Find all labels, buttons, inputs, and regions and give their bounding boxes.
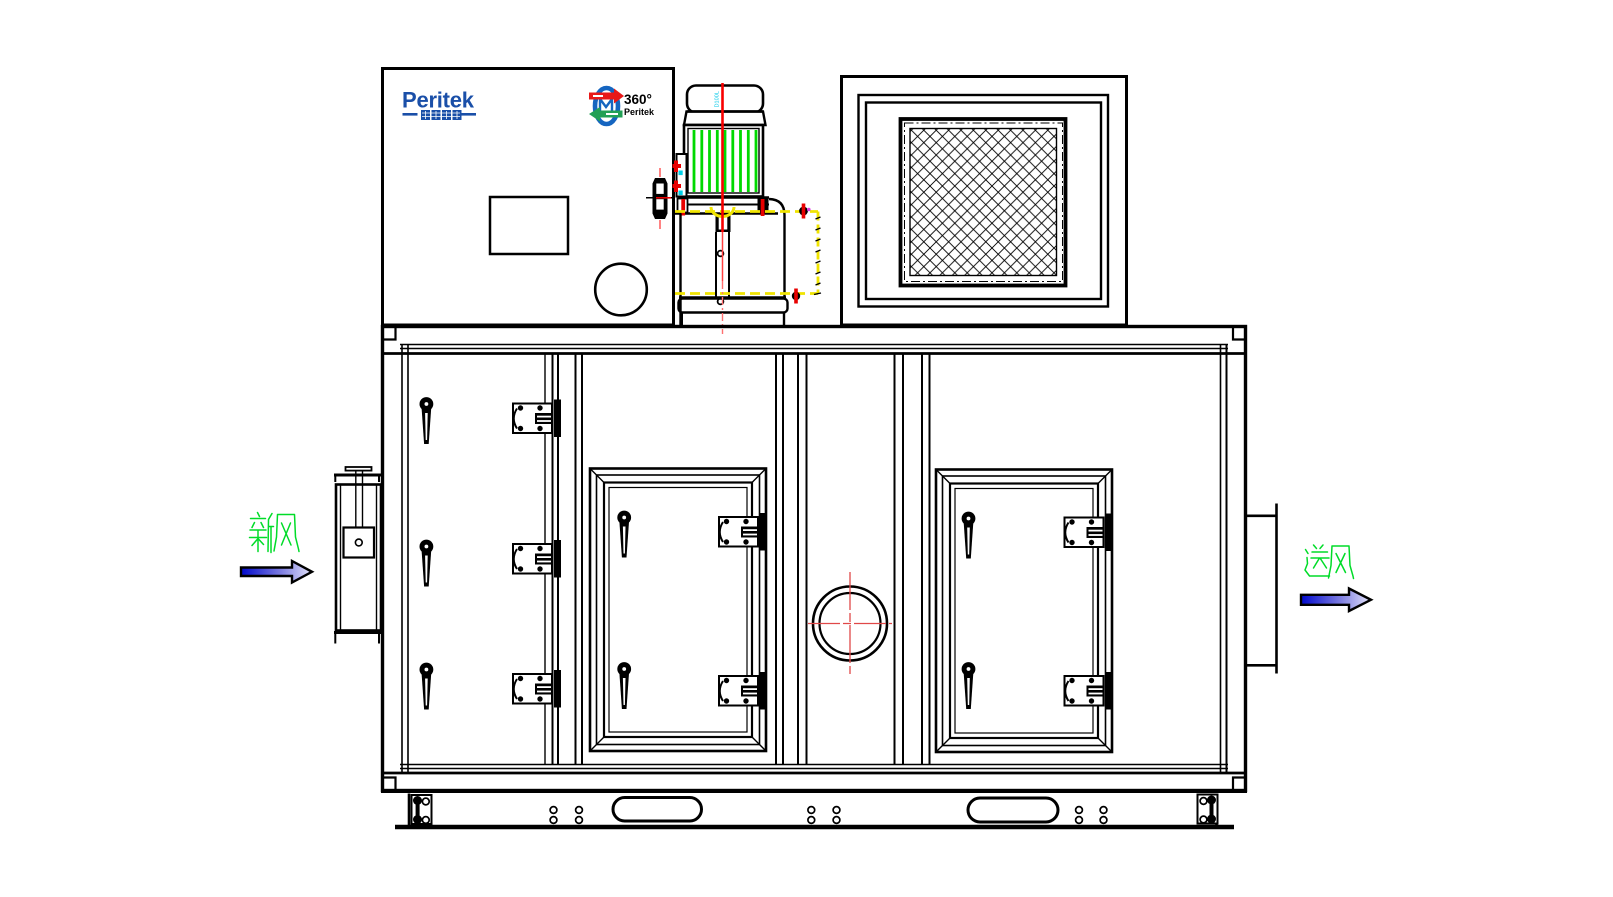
svg-text:Peritek: Peritek <box>624 107 655 117</box>
svg-text:360°: 360° <box>624 92 652 107</box>
svg-text:Peritek: Peritek <box>402 88 475 113</box>
svg-text:D100L: D100L <box>715 91 721 107</box>
